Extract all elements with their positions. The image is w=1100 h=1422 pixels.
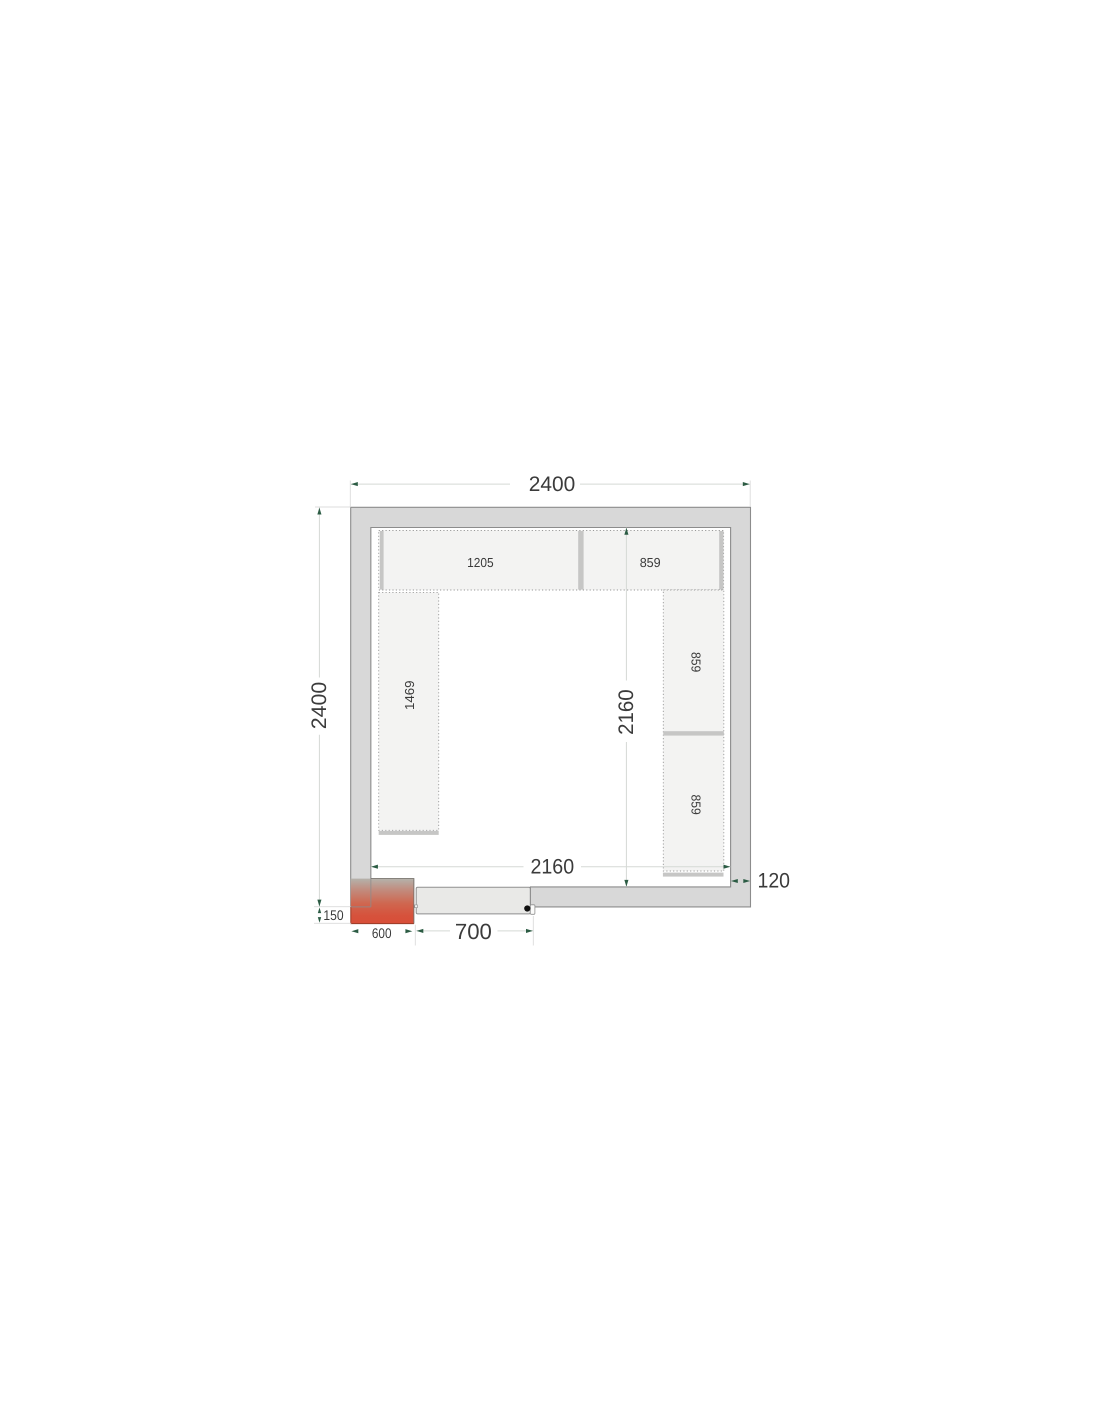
svg-text:1205: 1205 xyxy=(467,555,494,570)
svg-text:859: 859 xyxy=(689,794,704,814)
svg-text:2400: 2400 xyxy=(308,682,331,730)
svg-text:859: 859 xyxy=(640,555,661,570)
svg-text:2400: 2400 xyxy=(529,473,576,496)
svg-text:1469: 1469 xyxy=(402,680,417,710)
svg-text:150: 150 xyxy=(323,907,343,923)
svg-text:859: 859 xyxy=(689,652,704,672)
svg-text:2160: 2160 xyxy=(615,689,638,735)
svg-text:700: 700 xyxy=(455,919,492,944)
svg-text:120: 120 xyxy=(758,870,791,893)
svg-text:2160: 2160 xyxy=(531,855,575,878)
svg-text:600: 600 xyxy=(372,925,392,941)
